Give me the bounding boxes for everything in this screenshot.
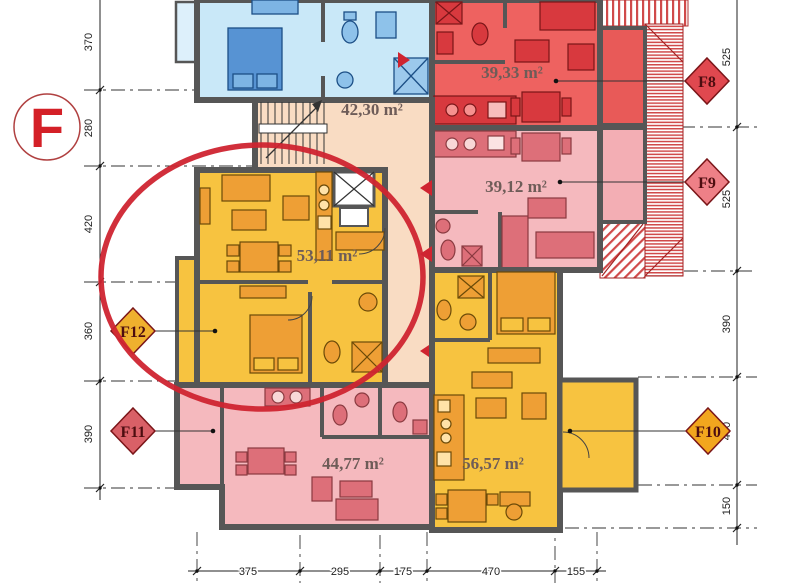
area-label-4230: 42,30 m² (341, 100, 403, 119)
roof-stripe-band (645, 24, 683, 276)
bed-gold (250, 315, 302, 373)
sofa-gold (222, 175, 270, 201)
apartment-f10-room: 56,57 m² (432, 270, 636, 530)
marker-f11-label: F11 (121, 424, 146, 441)
marker-f10-label: F10 (695, 424, 721, 441)
area-label-4477: 44,77 m² (322, 454, 384, 473)
kitchen-gold-bottom (434, 395, 464, 480)
area-label-3933: 39,33 m² (481, 63, 543, 82)
dim-bottom-295: 295 (331, 566, 349, 578)
kitchen-red (434, 96, 516, 124)
apartment-f9-room: 39,12 m² (432, 128, 600, 270)
roof-terrace (600, 0, 688, 278)
dresser-gold (240, 286, 286, 298)
floor-plan-drawing: 370 280 420 360 390 525 525 390 400 150 (0, 0, 807, 583)
roof-gable-hatch (602, 0, 688, 26)
dim-left-280: 280 (83, 119, 95, 137)
balcony-blue (176, 2, 197, 62)
marker-f8-label: F8 (698, 74, 716, 91)
sofa-red (540, 2, 595, 30)
balcony-f10 (560, 380, 636, 490)
apartment-blue (176, 0, 432, 100)
dim-right-525b: 525 (721, 190, 733, 208)
dim-right-525a: 525 (721, 48, 733, 66)
dining-pink-bottom (236, 448, 296, 475)
coffee-table-gold (232, 210, 266, 230)
dim-left-370: 370 (83, 33, 95, 51)
sofa-pink (536, 232, 594, 258)
coffee-table-pink-bottom (340, 481, 372, 497)
wardrobe-pink (502, 216, 528, 268)
tv-stand-gold-bottom (522, 393, 546, 419)
dresser-gold-bottom (488, 348, 540, 363)
coffee-table-pink (528, 198, 566, 218)
coffee-table-red (515, 40, 549, 62)
dim-right-390: 390 (721, 315, 733, 333)
marker-f9-label: F9 (698, 175, 716, 192)
block-logo-letter: F (30, 96, 64, 159)
area-label-3912: 39,12 m² (485, 177, 547, 196)
bed-blue (228, 28, 282, 90)
area-label-5657: 56,57 m² (462, 454, 524, 473)
apartment-f12-room: 53,11 m² (177, 170, 385, 390)
marker-f12-label: F12 (120, 324, 146, 341)
armchair-pink-bottom (312, 477, 332, 501)
dim-bottom-375: 375 (239, 566, 257, 578)
sofa-pink-bottom (336, 499, 378, 520)
dim-left-360: 360 (83, 322, 95, 340)
dim-right-150: 150 (721, 497, 733, 515)
tv-cabinet-gold (200, 188, 210, 224)
kitchen-pink (434, 131, 516, 157)
balcony-f8 (600, 28, 645, 125)
block-logo: F (14, 94, 80, 160)
armchair-gold (283, 196, 309, 220)
dim-bottom-155: 155 (567, 566, 585, 578)
balcony-f9 (600, 128, 645, 222)
area-label-5311: 53,11 m² (297, 246, 358, 265)
dresser-blue (252, 0, 298, 14)
bed-gold-bottom (497, 272, 555, 334)
shelf-gold-bottom (472, 372, 512, 388)
armchair-red (568, 44, 594, 70)
dimension-chain-bottom: 375 295 175 470 155 (188, 566, 606, 578)
dining-gold-bottom (436, 490, 530, 522)
dim-bottom-175: 175 (394, 566, 412, 578)
floor-plan-page: 370 280 420 360 390 525 525 390 400 150 (0, 0, 807, 583)
apartment-f8-room: 39,33 m² (432, 0, 600, 128)
dim-left-420: 420 (83, 215, 95, 233)
dim-left-390: 390 (83, 425, 95, 443)
dimension-chain-left: 370 280 420 360 390 (83, 0, 104, 500)
dim-bottom-470: 470 (482, 566, 500, 578)
coffee-table-gold-bottom (476, 398, 506, 418)
